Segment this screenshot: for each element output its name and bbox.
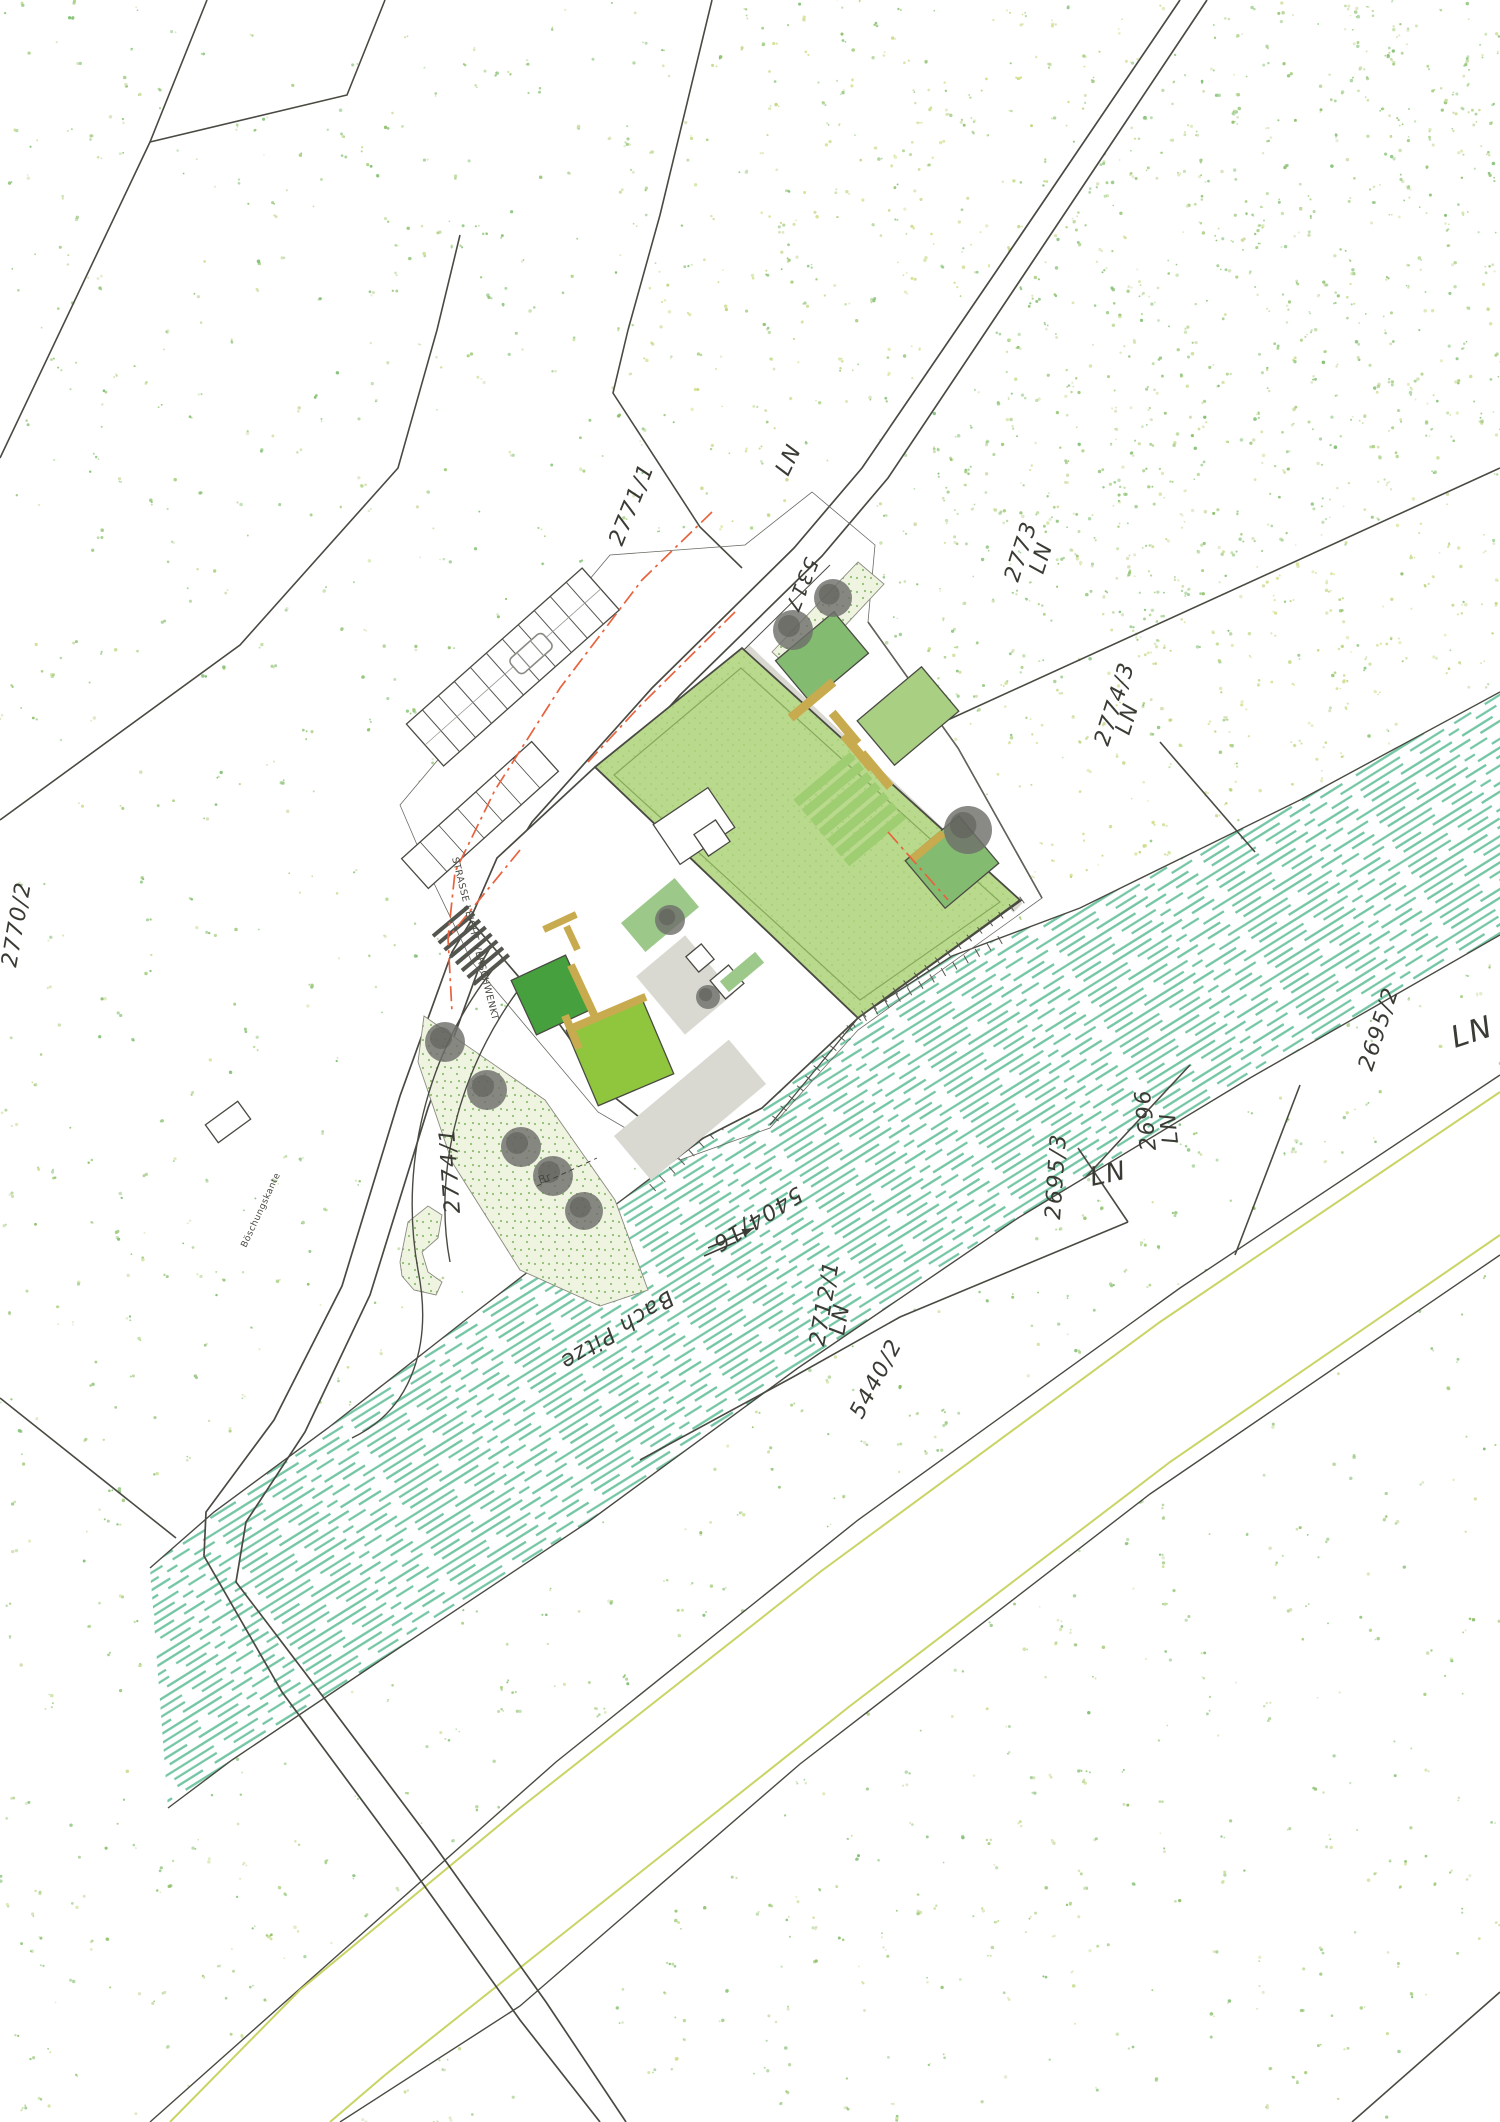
site-plan-svg: 2771/1LN53172773LN2774/3LN2695/2LN2696LN… [0, 0, 1500, 2122]
label-ln: LN [1087, 1156, 1129, 1193]
structure-14 [205, 1101, 250, 1142]
label-ln: LN [771, 440, 807, 479]
label-2771-1: 2771/1 [604, 460, 660, 549]
label-ln: LN [1156, 1111, 1184, 1145]
architectural-site-plan: 2771/1LN53172773LN2774/3LN2695/2LN2696LN… [0, 0, 1500, 2122]
label-ln: LN [1447, 1009, 1498, 1055]
label-b-schungskante: Böschungskante [240, 1171, 283, 1249]
label-2695-3: 2695/3 [1041, 1132, 1072, 1220]
label-2770-2: 2770/2 [0, 880, 37, 969]
label-5440-2: 5440/2 [845, 1335, 908, 1423]
